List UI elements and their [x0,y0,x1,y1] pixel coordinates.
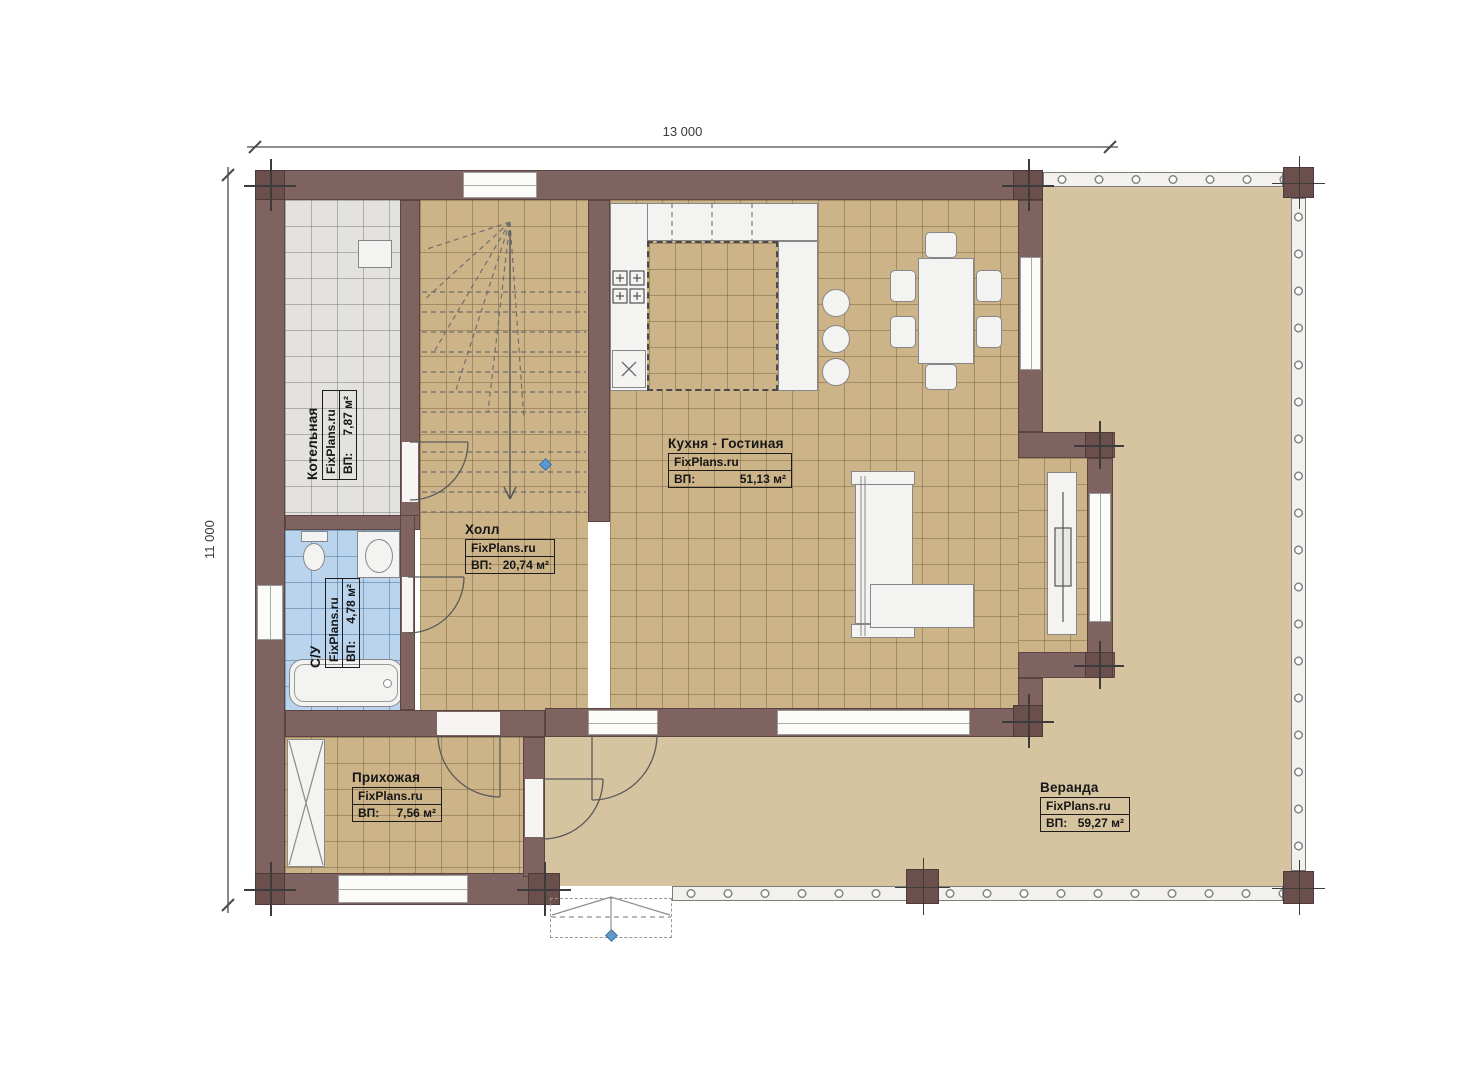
bar-stool [822,358,850,386]
room-name-bathroom: С/У [308,578,323,668]
door-opening-boiler [402,442,418,502]
sofa-armrest [851,471,915,485]
column-living-bottom-right [1013,705,1043,737]
column-bay-lower [1085,652,1113,678]
room-label-kitchen: Кухня - Гостиная FixPlans.ru ВП:51,13 м² [668,436,792,488]
dimension-line-left [222,167,234,913]
toilet-bowl [303,543,325,571]
area-value: 59,27 м² [1078,816,1124,830]
dining-chair [976,270,1002,302]
bar-stool [822,325,850,353]
area-label: ВП: [471,558,492,572]
room-info-box-boiler: FixPlans.ru ВП:7,87 м² [322,390,357,480]
dining-chair [890,316,916,348]
washbasin [365,539,393,573]
dining-chair [890,270,916,302]
watermark-text: FixPlans.ru [323,391,340,479]
kitchen-counter-bar [778,241,818,391]
area-value: 20,74 м² [503,558,549,572]
room-info-box-veranda: FixPlans.ru ВП:59,27 м² [1040,797,1130,832]
kitchen-island [647,241,778,391]
bar-stool [822,289,850,317]
glass-door-living-veranda [588,710,658,735]
veranda-railing-right [1291,198,1306,871]
door-opening-hallway [437,712,500,735]
window-living-bottom [777,710,970,735]
area-label: ВП: [1046,816,1067,830]
dining-table [918,258,974,364]
dimension-height: 11 000 [202,175,218,905]
dining-chair [925,232,957,258]
veranda-railing-bottom [672,886,1283,901]
veranda-post-bottom-mid [906,869,939,904]
window-top-stairs [463,172,537,198]
room-name-hall: Холл [465,522,555,537]
room-label-hallway: Прихожая FixPlans.ru ВП:7,56 м² [352,770,442,822]
column-top-left [255,170,285,200]
floor-plan: 13 000 11 000 Холл FixPlans.ru ВП:20,74 … [0,0,1473,1080]
room-info-box-hallway: FixPlans.ru ВП:7,56 м² [352,787,442,822]
toilet-tank [301,531,328,542]
window-left-bathroom [257,585,283,640]
room-label-bathroom: С/У FixPlans.ru ВП:4,78 м² [308,578,360,668]
area-value: 51,13 м² [740,472,786,486]
veranda-post-top-right [1283,167,1314,198]
wall-stairs-kitchen [588,200,610,522]
area-value: 4,78 м² [344,584,358,624]
watermark-text: FixPlans.ru [326,579,343,667]
window-hallway-bottom [338,875,468,903]
area-value: 7,56 м² [396,806,436,820]
dimension-line-top [247,141,1118,153]
door-opening-bathroom [402,577,413,632]
window-right-upper [1020,257,1041,370]
area-label: ВП: [344,641,358,662]
room-label-hall: Холл FixPlans.ru ВП:20,74 м² [465,522,555,574]
room-label-veranda: Веранда FixPlans.ru ВП:59,27 м² [1040,780,1130,832]
room-name-boiler: Котельная [305,390,320,480]
wall-top [255,170,1040,200]
room-name-kitchen: Кухня - Гостиная [668,436,792,451]
window-bay [1089,493,1111,622]
stairs-hall-floor [420,200,588,710]
veranda-floor-bottom [545,737,1043,886]
room-info-box-kitchen: FixPlans.ru ВП:51,13 м² [668,453,792,488]
column-bottom-left [255,873,285,905]
watermark-text: FixPlans.ru [669,454,791,471]
room-name-hallway: Прихожая [352,770,442,785]
column-bay-upper [1085,432,1113,458]
bathtub-drain [383,679,392,688]
room-name-veranda: Веранда [1040,780,1130,795]
room-info-box-bathroom: FixPlans.ru ВП:4,78 м² [325,578,360,668]
area-label: ВП: [341,453,355,474]
boiler-equipment [358,240,392,268]
dimension-width: 13 000 [255,124,1110,139]
wardrobe [287,739,325,867]
watermark-text: FixPlans.ru [353,788,441,805]
door-opening-hallway-veranda [525,779,543,837]
wall-left [255,170,285,905]
tv-unit [1047,472,1077,635]
room-label-boiler: Котельная FixPlans.ru ВП:7,87 м² [305,390,357,480]
area-label: ВП: [674,472,695,486]
room-info-box-hall: FixPlans.ru ВП:20,74 м² [465,539,555,574]
area-label: ВП: [358,806,379,820]
watermark-text: FixPlans.ru [466,540,554,557]
kitchen-sink [612,350,646,388]
veranda-railing-top [1043,172,1283,187]
area-value: 7,87 м² [341,396,355,436]
wall-hallway-top [285,710,545,737]
sofa-horizontal-section [870,584,974,628]
veranda-post-bottom-right [1283,871,1314,904]
watermark-text: FixPlans.ru [1041,798,1129,815]
dining-chair [925,364,957,390]
dining-chair [976,316,1002,348]
column-top-right [1013,170,1043,200]
